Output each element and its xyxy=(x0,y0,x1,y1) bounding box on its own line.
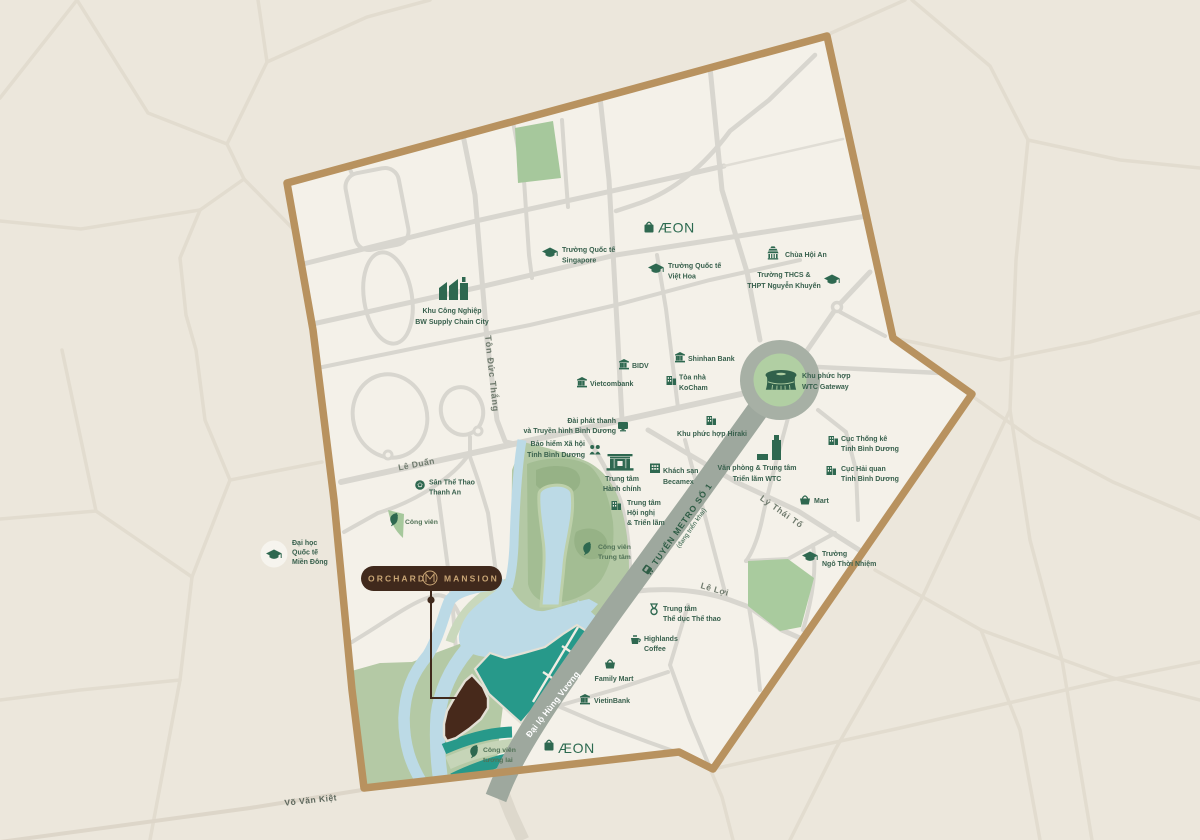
svg-text:Đài phát thanh: Đài phát thanh xyxy=(567,418,616,425)
svg-text:BW Supply Chain City: BW Supply Chain City xyxy=(415,319,489,326)
svg-text:Chùa Hội An: Chùa Hội An xyxy=(785,252,827,259)
svg-text:Vietcombank: Vietcombank xyxy=(590,381,634,388)
svg-text:Cục Hải quan: Cục Hải quan xyxy=(841,466,886,473)
svg-text:Khu phức hợp Hiraki: Khu phức hợp Hiraki xyxy=(677,431,747,438)
svg-text:Trung tâm: Trung tâm xyxy=(605,476,639,483)
svg-text:& Triển lãm: & Triển lãm xyxy=(627,519,665,527)
svg-text:BIDV: BIDV xyxy=(632,363,649,370)
svg-text:ORCHARD: ORCHARD xyxy=(368,574,426,584)
svg-text:Việt Hoa: Việt Hoa xyxy=(668,274,696,281)
svg-text:Coffee: Coffee xyxy=(644,646,666,653)
svg-text:Công viên: Công viên xyxy=(598,544,631,551)
svg-text:Shinhan Bank: Shinhan Bank xyxy=(688,356,735,363)
svg-text:Triển lãm WTC: Triển lãm WTC xyxy=(733,475,782,483)
svg-text:Trường: Trường xyxy=(822,551,847,558)
svg-text:Tỉnh Bình Dương: Tỉnh Bình Dương xyxy=(841,476,899,483)
svg-text:Becamex: Becamex xyxy=(663,479,694,486)
svg-text:ÆON: ÆON xyxy=(658,220,695,236)
svg-text:Tòa nhà: Tòa nhà xyxy=(679,375,706,382)
svg-text:Công viên: Công viên xyxy=(405,519,438,526)
svg-text:Khách sạn: Khách sạn xyxy=(663,468,698,475)
svg-text:WTC Gateway: WTC Gateway xyxy=(802,384,849,391)
svg-text:Khu Công Nghiệp: Khu Công Nghiệp xyxy=(422,308,481,315)
svg-text:Tỉnh Bình Dương: Tỉnh Bình Dương xyxy=(527,452,585,459)
svg-text:Văn phòng & Trung tâm: Văn phòng & Trung tâm xyxy=(718,465,797,472)
svg-text:Công viên: Công viên xyxy=(483,747,516,754)
svg-text:THPT Nguyễn Khuyến: THPT Nguyễn Khuyến xyxy=(747,281,821,290)
svg-text:Highlands: Highlands xyxy=(644,636,678,643)
svg-text:Sân Thể Thao: Sân Thể Thao xyxy=(429,479,475,487)
svg-text:Hội nghị: Hội nghị xyxy=(627,510,655,517)
svg-text:Trung tâm: Trung tâm xyxy=(598,554,631,561)
svg-text:và Truyền hình Bình Dương: và Truyền hình Bình Dương xyxy=(524,426,617,435)
svg-text:Đại học: Đại học xyxy=(292,540,317,547)
svg-text:Trung tâm: Trung tâm xyxy=(627,500,661,507)
svg-text:Trường THCS &: Trường THCS & xyxy=(757,272,810,279)
svg-text:Khu phức hợp: Khu phức hợp xyxy=(802,373,851,380)
svg-text:Quốc tế: Quốc tế xyxy=(292,549,318,557)
svg-text:Tỉnh Bình Dương: Tỉnh Bình Dương xyxy=(841,446,899,453)
svg-text:Thanh An: Thanh An xyxy=(429,490,461,497)
svg-text:Singapore: Singapore xyxy=(562,258,596,265)
svg-text:Ngô Thời Nhiệm: Ngô Thời Nhiệm xyxy=(822,561,876,568)
svg-text:Bảo hiểm Xã hội: Bảo hiểm Xã hội xyxy=(531,440,586,448)
svg-text:VietinBank: VietinBank xyxy=(594,698,630,705)
svg-text:Family Mart: Family Mart xyxy=(595,676,635,683)
svg-text:Trường Quốc tế: Trường Quốc tế xyxy=(668,262,721,270)
svg-text:ÆON: ÆON xyxy=(558,740,595,756)
svg-text:tương lai: tương lai xyxy=(483,757,513,764)
svg-text:MANSION: MANSION xyxy=(444,574,499,584)
svg-text:Miền Đông: Miền Đông xyxy=(292,557,328,566)
svg-text:Trường Quốc tế: Trường Quốc tế xyxy=(562,246,615,254)
svg-text:Trung tâm: Trung tâm xyxy=(663,606,697,613)
svg-text:Cục Thống kê: Cục Thống kê xyxy=(841,435,887,443)
svg-text:Thể dục Thể thao: Thể dục Thể thao xyxy=(663,615,721,623)
svg-text:Hành chính: Hành chính xyxy=(603,486,641,493)
svg-text:Mart: Mart xyxy=(814,498,829,505)
svg-text:KoCham: KoCham xyxy=(679,385,708,392)
